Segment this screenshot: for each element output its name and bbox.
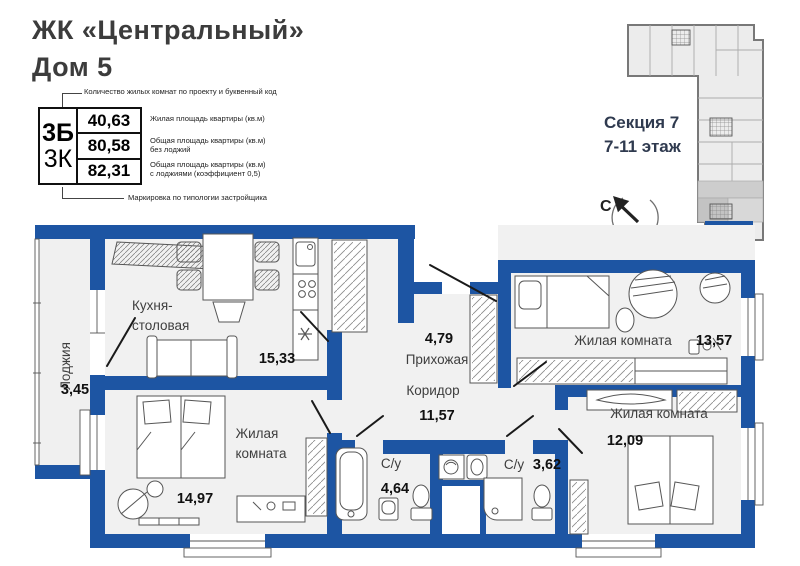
room-area-bath-2: 3,62 — [533, 457, 561, 473]
room-label-living-3b: комната — [235, 446, 287, 461]
room-label-living-2: Жилая комната — [610, 406, 708, 421]
room-area-corridor: 11,57 — [419, 408, 455, 424]
chair-icon — [177, 270, 201, 290]
room-label-entry-hall: Прихожая — [406, 352, 469, 367]
toilet-icon — [413, 485, 429, 507]
shower-icon — [484, 478, 522, 520]
loggia-glazing — [35, 239, 39, 465]
legend-value-living-area: 40,63 — [78, 109, 140, 134]
apartment-code-cell: 3Б 3К — [40, 109, 78, 183]
legend-label-total-with-loggia: Общая площадь квартиры (кв.м) с лоджиями… — [150, 160, 270, 179]
window — [90, 415, 105, 470]
compass-north-label: С — [600, 198, 612, 215]
room-label-bath-1: С/у — [381, 456, 402, 471]
legend-value-total-with-loggia: 82,31 — [78, 160, 140, 183]
room-label-bath-2: С/у — [504, 457, 525, 472]
elevator-core-icon — [710, 204, 732, 219]
dining-table-icon — [203, 234, 253, 300]
pillow-icon — [671, 482, 699, 510]
room-label-kitchen-2: столовая — [132, 318, 189, 333]
window-sill — [184, 548, 271, 557]
window-sill — [755, 294, 763, 360]
room-area-kitchen: 15,33 — [259, 351, 295, 367]
exterior-notch — [414, 225, 498, 283]
chair-icon — [255, 242, 279, 262]
apartment-code-primary: 3Б — [42, 120, 74, 146]
page-subtitle: Дом 5 — [32, 52, 113, 83]
keyplan-corridor — [698, 181, 763, 198]
apartment-code-secondary: 3К — [44, 146, 72, 172]
room-label-living-1: Жилая комната — [574, 333, 672, 348]
pillow-icon — [635, 482, 663, 510]
shaft — [442, 486, 480, 534]
elevator-core-icon — [672, 30, 690, 45]
legend-box: 3Б 3К 40,63 80,58 82,31 — [38, 107, 142, 185]
chair-icon — [616, 308, 634, 332]
room-area-entry-hall: 4,79 — [425, 331, 453, 347]
chair-icon — [177, 242, 201, 262]
floor-plan: Лоджия 3,45 Кухня- столовая 15,33 4,79 П… — [25, 218, 775, 563]
round-table-icon — [629, 270, 677, 318]
room-area-loggia: 3,45 — [61, 382, 89, 398]
floorplan-page: ЖК «Центральный» Дом 5 Количество жилых … — [0, 0, 800, 566]
room-area-bath-1: 4,64 — [381, 481, 409, 497]
legend-value-total-area: 80,58 — [78, 134, 140, 159]
leader-line — [62, 93, 82, 94]
chair-icon — [255, 270, 279, 290]
pillow-icon — [143, 400, 171, 424]
toilet-icon — [534, 485, 550, 507]
window-sill — [755, 423, 763, 505]
pillow-icon — [519, 281, 541, 309]
window-sill — [576, 548, 661, 557]
legend-label-total-area: Общая площадь квартиры (кв.м) без лоджий — [150, 136, 270, 155]
pillow-icon — [183, 400, 211, 424]
chair-icon — [213, 302, 245, 322]
legend-annotation-top: Количество жилых комнат по проекту и бук… — [84, 87, 277, 96]
side-table-icon — [147, 481, 163, 497]
page-title: ЖК «Центральный» — [32, 15, 304, 46]
window-sill — [80, 410, 90, 475]
faucet-icon — [308, 245, 313, 250]
leader-line — [62, 198, 124, 199]
legend-values: 40,63 80,58 82,31 — [78, 109, 140, 183]
room-label-kitchen-1: Кухня- — [132, 298, 173, 313]
room-area-living-3: 14,97 — [177, 491, 213, 507]
legend-label-living-area: Жилая площадь квартиры (кв.м) — [150, 114, 270, 123]
room-label-living-3a: Жилая — [236, 426, 279, 441]
stove-icon — [299, 281, 306, 288]
balcony-door-window — [90, 290, 105, 375]
rug-icon — [139, 518, 199, 525]
legend-annotation-bottom: Маркировка по типологии застройщика — [128, 193, 267, 202]
room-label-corridor: Коридор — [406, 383, 459, 398]
room-area-living-1: 13,57 — [696, 333, 732, 349]
room-area-living-2: 12,09 — [607, 433, 643, 449]
leader-line — [62, 93, 63, 107]
elevator-core-icon — [710, 118, 732, 136]
